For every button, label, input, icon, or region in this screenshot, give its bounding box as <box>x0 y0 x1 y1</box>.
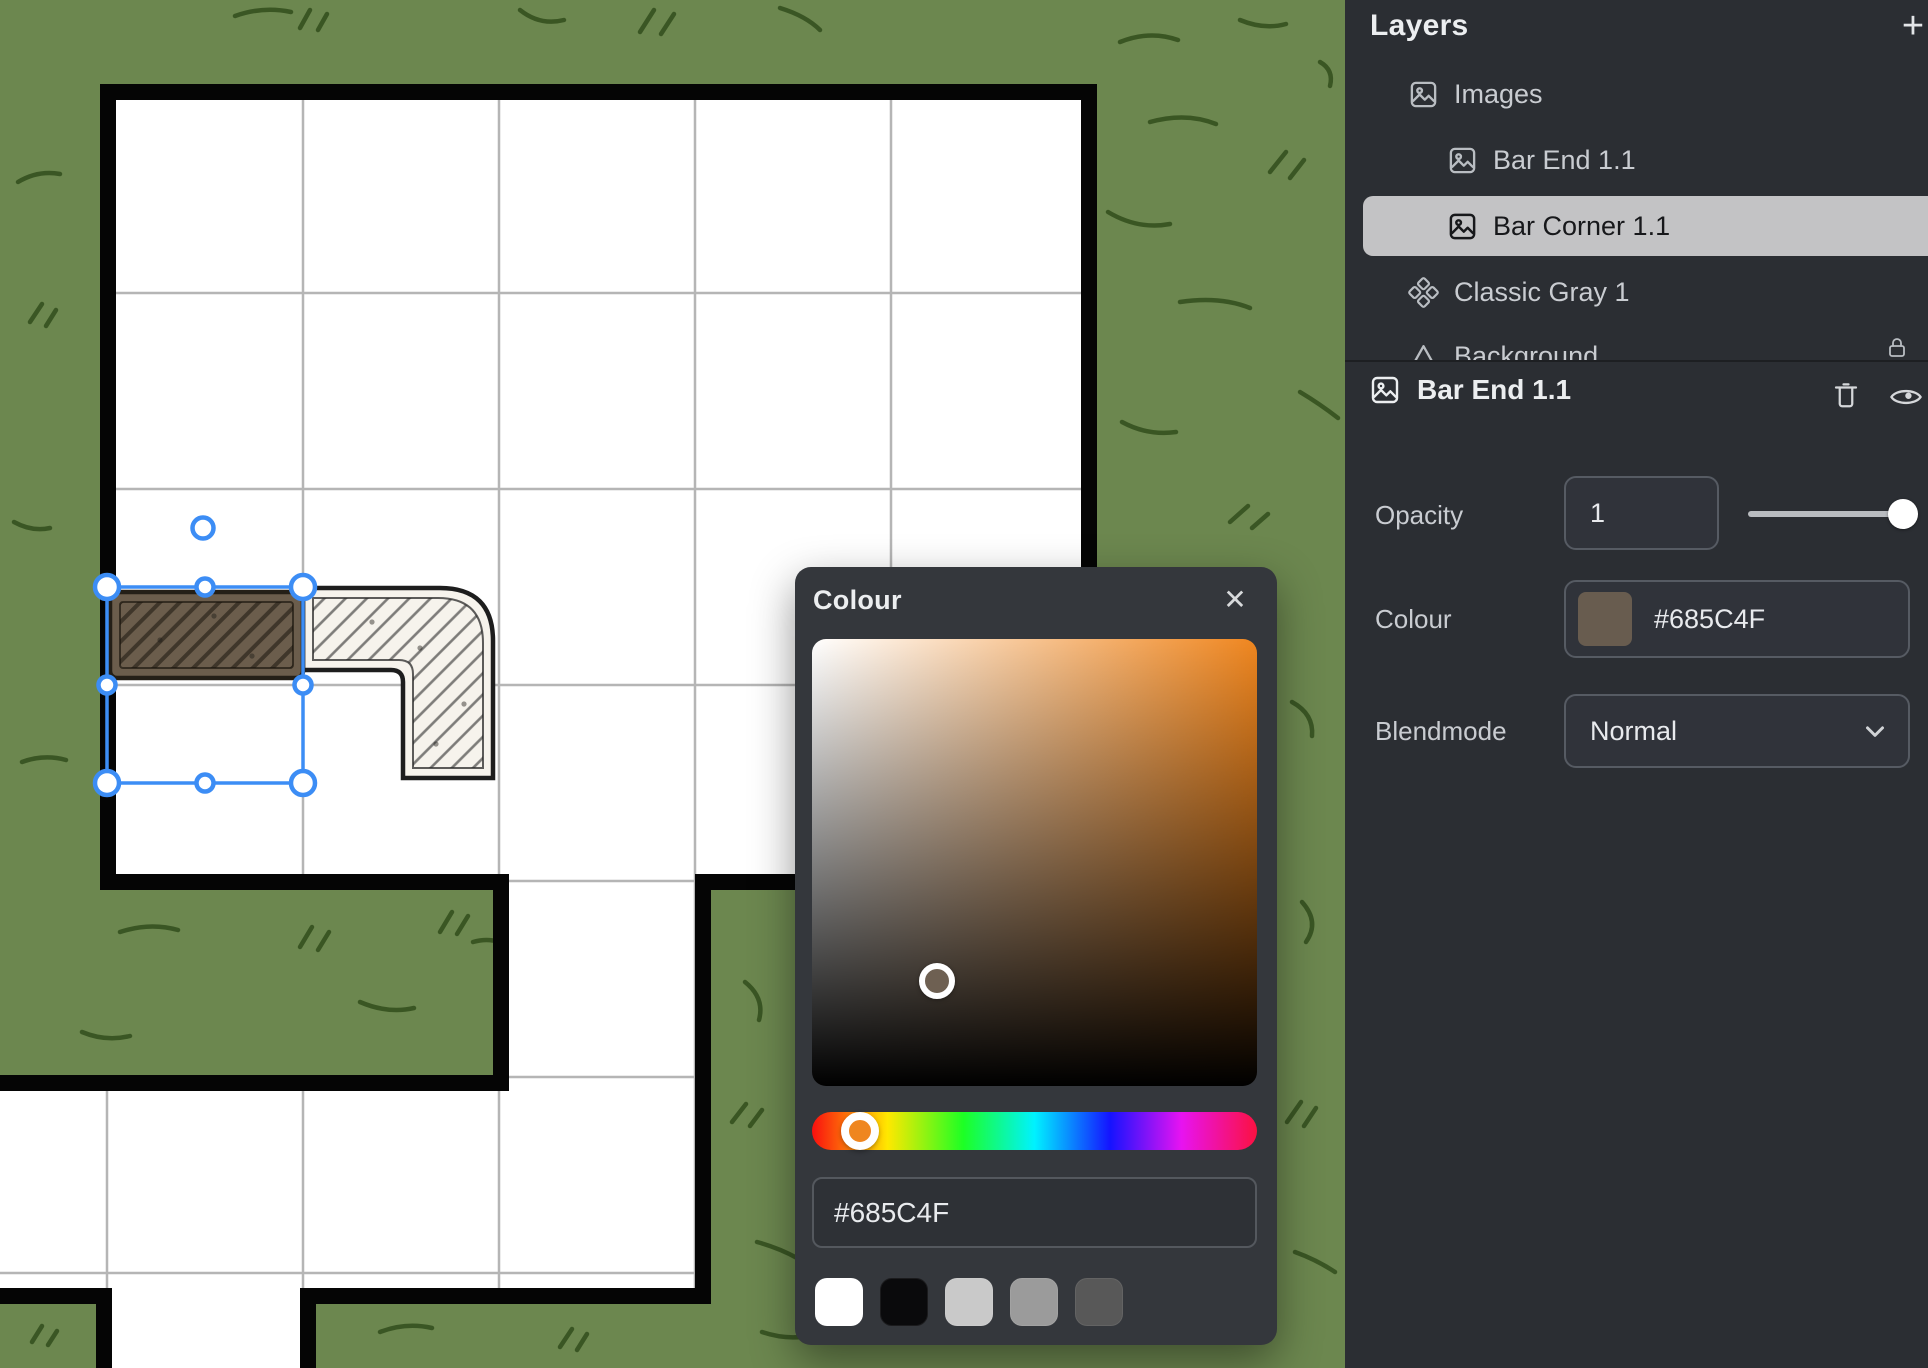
opacity-input[interactable] <box>1564 476 1719 550</box>
layer-row-bar-corner[interactable]: Bar Corner 1.1 <box>1345 196 1928 256</box>
colour-field[interactable]: #685C4F <box>1564 580 1910 658</box>
layer-label: Images <box>1454 79 1543 110</box>
selection-handle[interactable] <box>197 579 214 596</box>
hue-slider[interactable] <box>812 1112 1257 1150</box>
colour-label: Colour <box>1375 604 1452 635</box>
delete-layer-button[interactable] <box>1831 380 1861 410</box>
layer-label: Classic Gray 1 <box>1454 277 1630 308</box>
image-icon <box>1447 145 1478 176</box>
layers-list: Images Bar End 1.1 Bar Corner 1.1 <box>1345 0 1928 360</box>
blendmode-value: Normal <box>1590 716 1677 747</box>
visibility-eye-icon[interactable] <box>1889 384 1923 410</box>
saturation-value-picker[interactable] <box>812 639 1257 1086</box>
selection-handle[interactable] <box>95 575 119 599</box>
selection-handle[interactable] <box>99 677 116 694</box>
panel-divider <box>1345 360 1928 362</box>
layer-row-bar-end[interactable]: Bar End 1.1 <box>1345 130 1928 190</box>
layer-row-images[interactable]: Images <box>1345 64 1928 124</box>
bar-end-object[interactable] <box>110 592 303 678</box>
opacity-slider-knob[interactable] <box>1888 499 1918 529</box>
properties-title: Bar End 1.1 <box>1417 374 1571 406</box>
selection-handle[interactable] <box>197 775 214 792</box>
selection-handle[interactable] <box>295 677 312 694</box>
colour-dialog: Colour ✕ <box>795 567 1277 1345</box>
swatch-gray[interactable] <box>1010 1278 1058 1326</box>
hue-slider-handle[interactable] <box>841 1112 879 1150</box>
image-icon <box>1408 79 1439 110</box>
selection-handle[interactable] <box>291 771 315 795</box>
layer-label: Bar Corner 1.1 <box>1493 211 1670 242</box>
pattern-icon <box>1408 277 1439 308</box>
chevron-down-icon <box>1860 716 1890 746</box>
layer-row-background[interactable]: Background <box>1345 326 1928 360</box>
hex-colour-input[interactable] <box>812 1177 1257 1248</box>
swatch-dark-gray[interactable] <box>1075 1278 1123 1326</box>
opacity-slider[interactable] <box>1748 511 1918 517</box>
selection-handle[interactable] <box>95 771 119 795</box>
blendmode-dropdown[interactable]: Normal <box>1564 694 1910 768</box>
swatch-black[interactable] <box>880 1278 928 1326</box>
layer-label: Background <box>1454 341 1598 361</box>
blendmode-label: Blendmode <box>1375 716 1507 747</box>
image-icon <box>1369 374 1401 406</box>
colour-hex-value: #685C4F <box>1654 604 1765 635</box>
layers-panel: Layers + Images Bar End 1.1 <box>1345 0 1928 1368</box>
lock-icon[interactable] <box>1885 336 1909 360</box>
layer-row-classic-gray[interactable]: Classic Gray 1 <box>1345 262 1928 322</box>
properties-header: Bar End 1.1 <box>1369 374 1571 406</box>
preset-swatches <box>815 1278 1123 1326</box>
close-icon[interactable]: ✕ <box>1215 579 1255 619</box>
image-icon <box>1447 211 1478 242</box>
colour-swatch[interactable] <box>1578 592 1632 646</box>
swatch-white[interactable] <box>815 1278 863 1326</box>
swatch-light-gray[interactable] <box>945 1278 993 1326</box>
sv-cursor[interactable] <box>919 963 955 999</box>
rotation-handle[interactable] <box>193 518 214 539</box>
colour-dialog-title: Colour <box>813 585 902 616</box>
selection-handle[interactable] <box>291 575 315 599</box>
opacity-label: Opacity <box>1375 500 1463 531</box>
layer-label: Bar End 1.1 <box>1493 145 1636 176</box>
background-icon <box>1408 341 1439 361</box>
